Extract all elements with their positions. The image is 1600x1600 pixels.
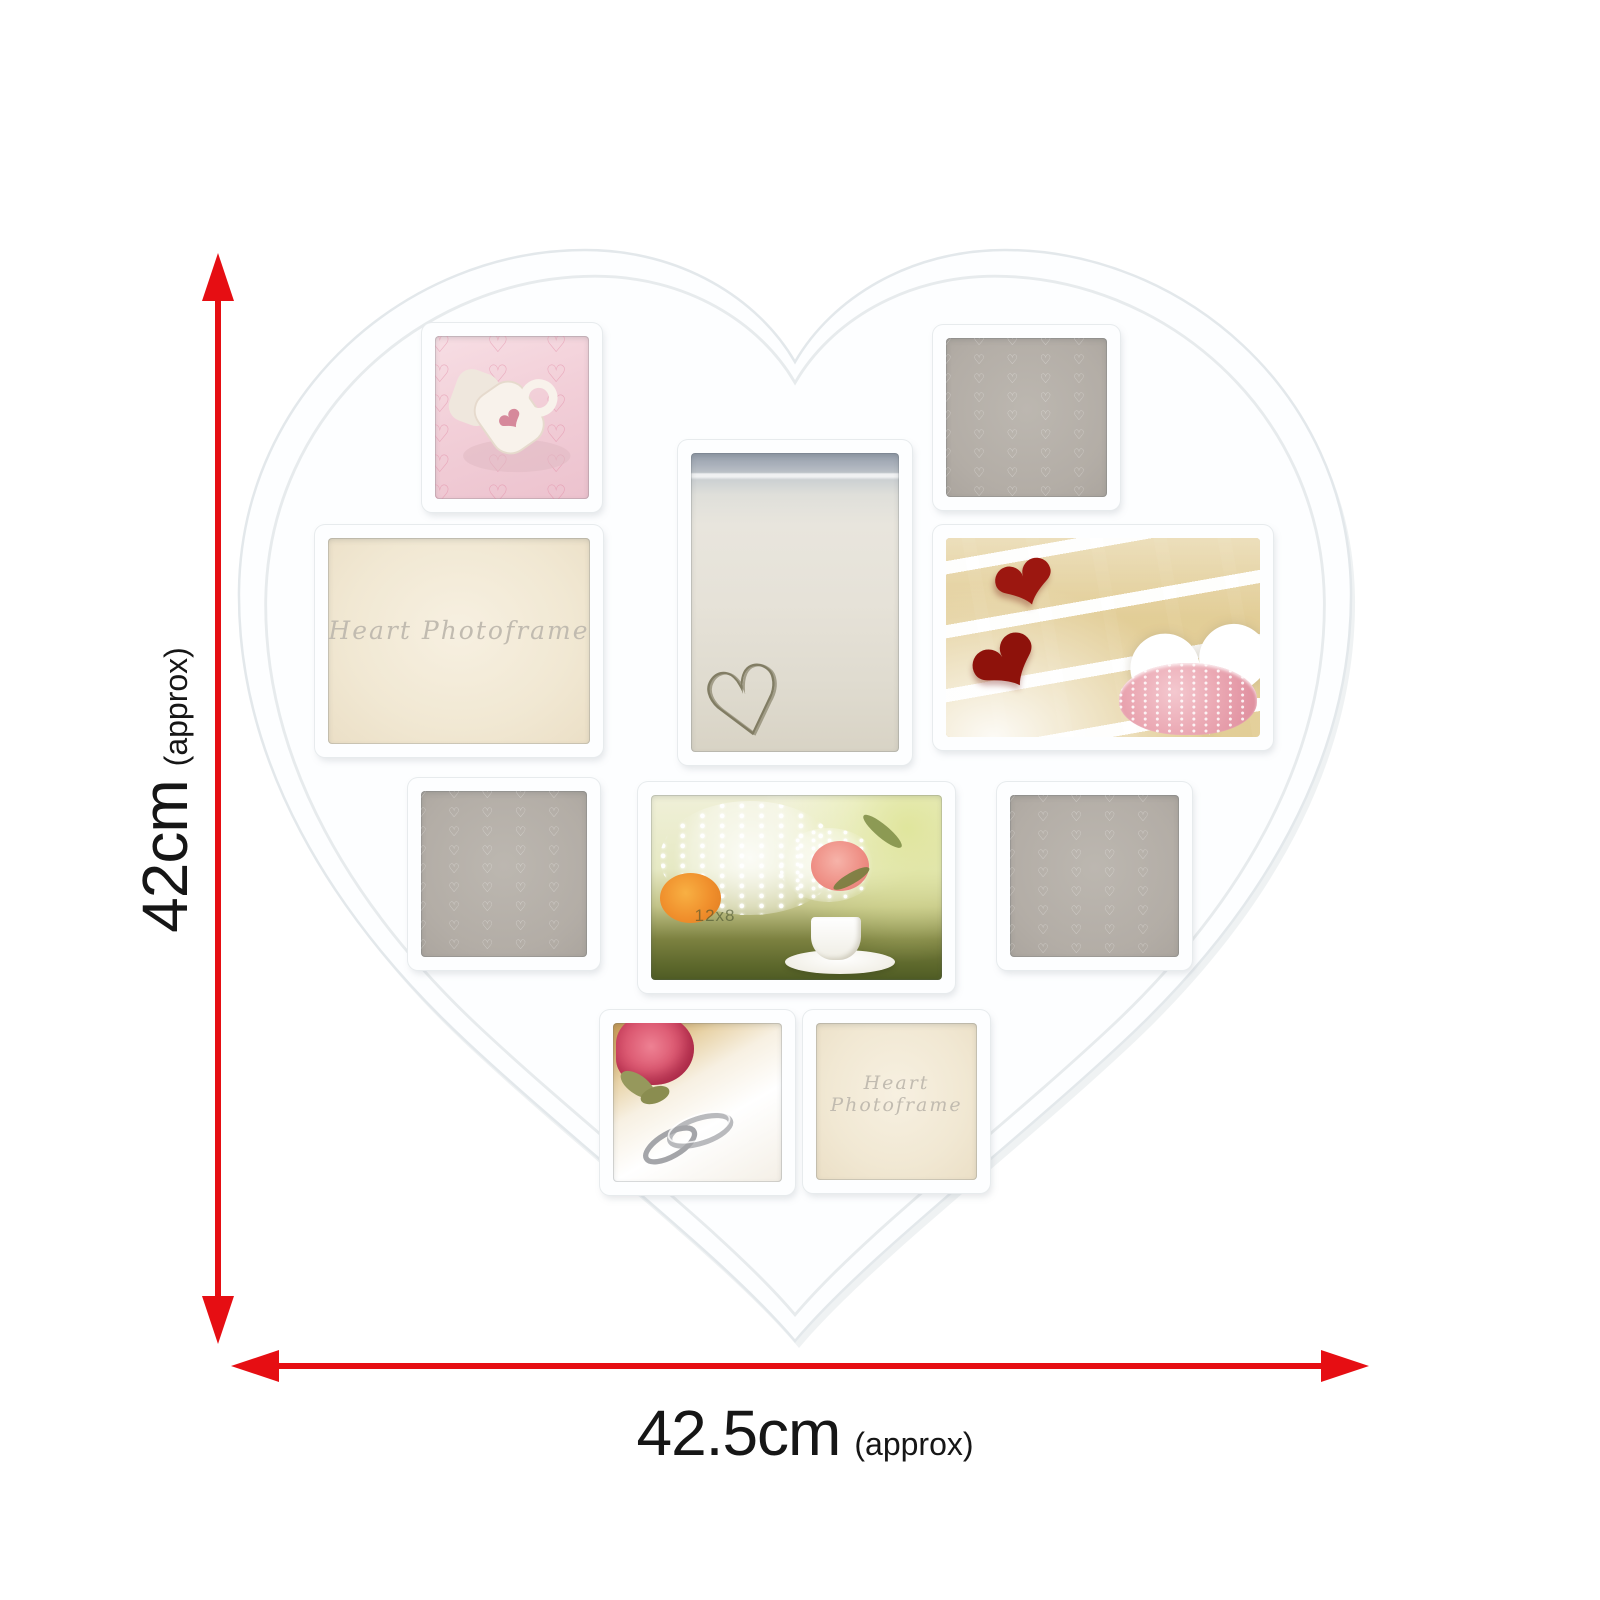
photo-beach-sand-heart: ♡	[691, 453, 899, 752]
frame-slot-bottom-left-square	[600, 1010, 795, 1195]
heart-pattern-insert: ♡ ♡ ♡ ♡ ♡ ♡ ♡ ♡ ♡ ♡ ♡ ♡ ♡ ♡ ♡ ♡ ♡ ♡ ♡ ♡ …	[946, 338, 1107, 497]
photo-watermark: 12x8	[695, 906, 736, 926]
cream-placeholder-insert: Heart Photoframe	[328, 538, 590, 744]
frame-slot-row3-right-square: ♡ ♡ ♡ ♡ ♡ ♡ ♡ ♡ ♡ ♡ ♡ ♡ ♡ ♡ ♡ ♡ ♡ ♡ ♡ ♡ …	[997, 782, 1192, 970]
frame-slot-middle-right-landscape: ❤ ❤ ❤ ● ● ● ● ● ● ● ● ● ● ● ● ● ● ● ● ● …	[933, 525, 1273, 750]
placeholder-brand-text: Heart Photoframe	[816, 1072, 977, 1116]
width-arrow-left-head	[231, 1350, 279, 1382]
height-value: 42cm	[128, 780, 202, 933]
teacup	[811, 917, 860, 960]
salt-grains: ● ● ● ● ● ● ● ● ● ● ● ● ● ● ● ● ● ● ● ● …	[1119, 663, 1257, 735]
heart-pattern-insert: ♡ ♡ ♡ ♡ ♡ ♡ ♡ ♡ ♡ ♡ ♡ ♡ ♡ ♡ ♡ ♡ ♡ ♡ ♡ ♡ …	[1010, 795, 1179, 957]
frame-slot-row3-left-square: ♡ ♡ ♡ ♡ ♡ ♡ ♡ ♡ ♡ ♡ ♡ ♡ ♡ ♡ ♡ ♡ ♡ ♡ ♡ ♡ …	[408, 778, 600, 970]
photo-heart-mugs: ♡ ♡ ♡ ♡ ♡ ♡ ♡ ♡ ♡ ♡ ♡ ♡ ♡ ♡ ♡ ♡ ♡ ♡ ♡ ♡ …	[435, 336, 589, 499]
width-qualifier: (approx)	[854, 1426, 973, 1463]
frame-slot-center-portrait: ♡	[678, 440, 912, 765]
frame-slot-top-right-square: ♡ ♡ ♡ ♡ ♡ ♡ ♡ ♡ ♡ ♡ ♡ ♡ ♡ ♡ ♡ ♡ ♡ ♡ ♡ ♡ …	[933, 325, 1120, 510]
photo-wedding-rings	[613, 1023, 782, 1182]
cream-placeholder-insert: Heart Photoframe	[816, 1023, 977, 1180]
frame-slot-row3-center-landscape: ● ● ● ● ● ● ● ● ● ● ● ● ● ● ● ● ● ● ● ● …	[638, 782, 955, 993]
heart-pattern-insert: ♡ ♡ ♡ ♡ ♡ ♡ ♡ ♡ ♡ ♡ ♡ ♡ ♡ ♡ ♡ ♡ ♡ ♡ ♡ ♡ …	[421, 791, 587, 957]
photo-red-glass-hearts: ❤ ❤ ❤ ● ● ● ● ● ● ● ● ● ● ● ● ● ● ● ● ● …	[946, 538, 1260, 737]
frame-slot-top-left-square: ♡ ♡ ♡ ♡ ♡ ♡ ♡ ♡ ♡ ♡ ♡ ♡ ♡ ♡ ♡ ♡ ♡ ♡ ♡ ♡ …	[422, 323, 602, 512]
height-arrow-up-head	[202, 253, 234, 301]
gray-placeholder-insert: ♡ ♡ ♡ ♡ ♡ ♡ ♡ ♡ ♡ ♡ ♡ ♡ ♡ ♡ ♡ ♡ ♡ ♡ ♡ ♡ …	[421, 791, 587, 957]
placeholder-brand-text: Heart Photoframe	[328, 616, 590, 645]
width-dimension-label: 42.5cm (approx)	[636, 1396, 973, 1470]
gray-placeholder-insert: ♡ ♡ ♡ ♡ ♡ ♡ ♡ ♡ ♡ ♡ ♡ ♡ ♡ ♡ ♡ ♡ ♡ ♡ ♡ ♡ …	[1010, 795, 1179, 957]
frame-slot-bottom-right-square: Heart Photoframe	[803, 1010, 990, 1193]
gray-placeholder-insert: ♡ ♡ ♡ ♡ ♡ ♡ ♡ ♡ ♡ ♡ ♡ ♡ ♡ ♡ ♡ ♡ ♡ ♡ ♡ ♡ …	[946, 338, 1107, 497]
width-value: 42.5cm	[636, 1396, 840, 1470]
photo-wedding-flowers: ● ● ● ● ● ● ● ● ● ● ● ● ● ● ● ● ● ● ● ● …	[651, 795, 942, 980]
height-arrow-down-head	[202, 1296, 234, 1344]
rings-illustration	[613, 1023, 782, 1182]
product-image-heart-photoframe: ♡ ♡ ♡ ♡ ♡ ♡ ♡ ♡ ♡ ♡ ♡ ♡ ♡ ♡ ♡ ♡ ♡ ♡ ♡ ♡ …	[0, 0, 1600, 1600]
height-qualifier: (approx)	[158, 647, 195, 766]
sand-heart-icon: ♡	[693, 648, 799, 752]
mugs-illustration: ❤	[435, 336, 589, 499]
height-dimension-label: 42cm (approx)	[128, 647, 202, 933]
pink-salt: ● ● ● ● ● ● ● ● ● ● ● ● ● ● ● ● ● ● ● ● …	[1119, 663, 1257, 735]
width-arrow-right-head	[1321, 1350, 1369, 1382]
frame-slot-middle-left-landscape: Heart Photoframe	[315, 525, 603, 757]
